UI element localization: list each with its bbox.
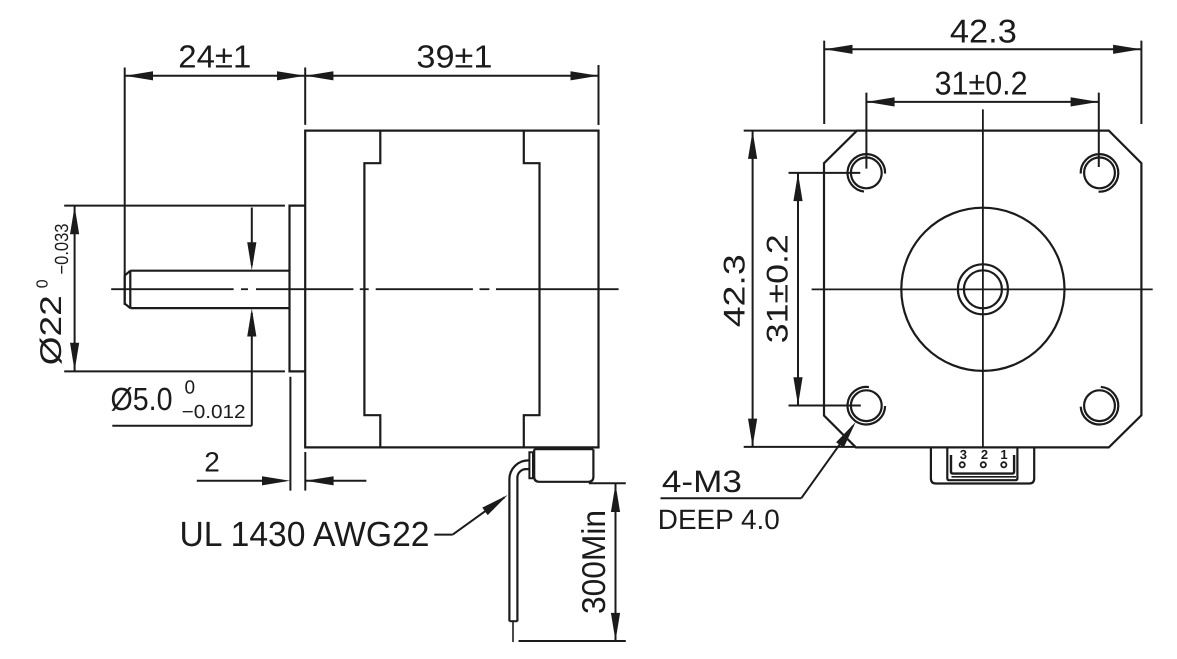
svg-text:2: 2 xyxy=(204,446,220,477)
svg-text:UL 1430 AWG22: UL 1430 AWG22 xyxy=(180,515,430,554)
svg-text:39±1: 39±1 xyxy=(416,39,492,75)
svg-text:31±0.2: 31±0.2 xyxy=(935,64,1028,101)
svg-text:2: 2 xyxy=(981,447,988,462)
svg-text:1: 1 xyxy=(1000,447,1007,462)
svg-text:0: 0 xyxy=(35,279,52,288)
svg-text:−0.012: −0.012 xyxy=(182,402,246,423)
svg-text:42.3: 42.3 xyxy=(719,254,752,327)
svg-text:42.3: 42.3 xyxy=(950,12,1017,49)
svg-text:24±1: 24±1 xyxy=(178,39,251,75)
svg-text:0: 0 xyxy=(185,378,196,399)
svg-text:Ø22: Ø22 xyxy=(35,295,68,365)
svg-text:−0.033: −0.033 xyxy=(52,224,73,275)
svg-text:31±0.2: 31±0.2 xyxy=(762,234,795,343)
svg-text:300Min: 300Min xyxy=(575,510,612,614)
svg-text:DEEP 4.0: DEEP 4.0 xyxy=(658,504,780,535)
svg-text:3: 3 xyxy=(960,447,967,462)
svg-text:4-M3: 4-M3 xyxy=(662,464,742,499)
svg-text:Ø5.0: Ø5.0 xyxy=(111,381,173,417)
